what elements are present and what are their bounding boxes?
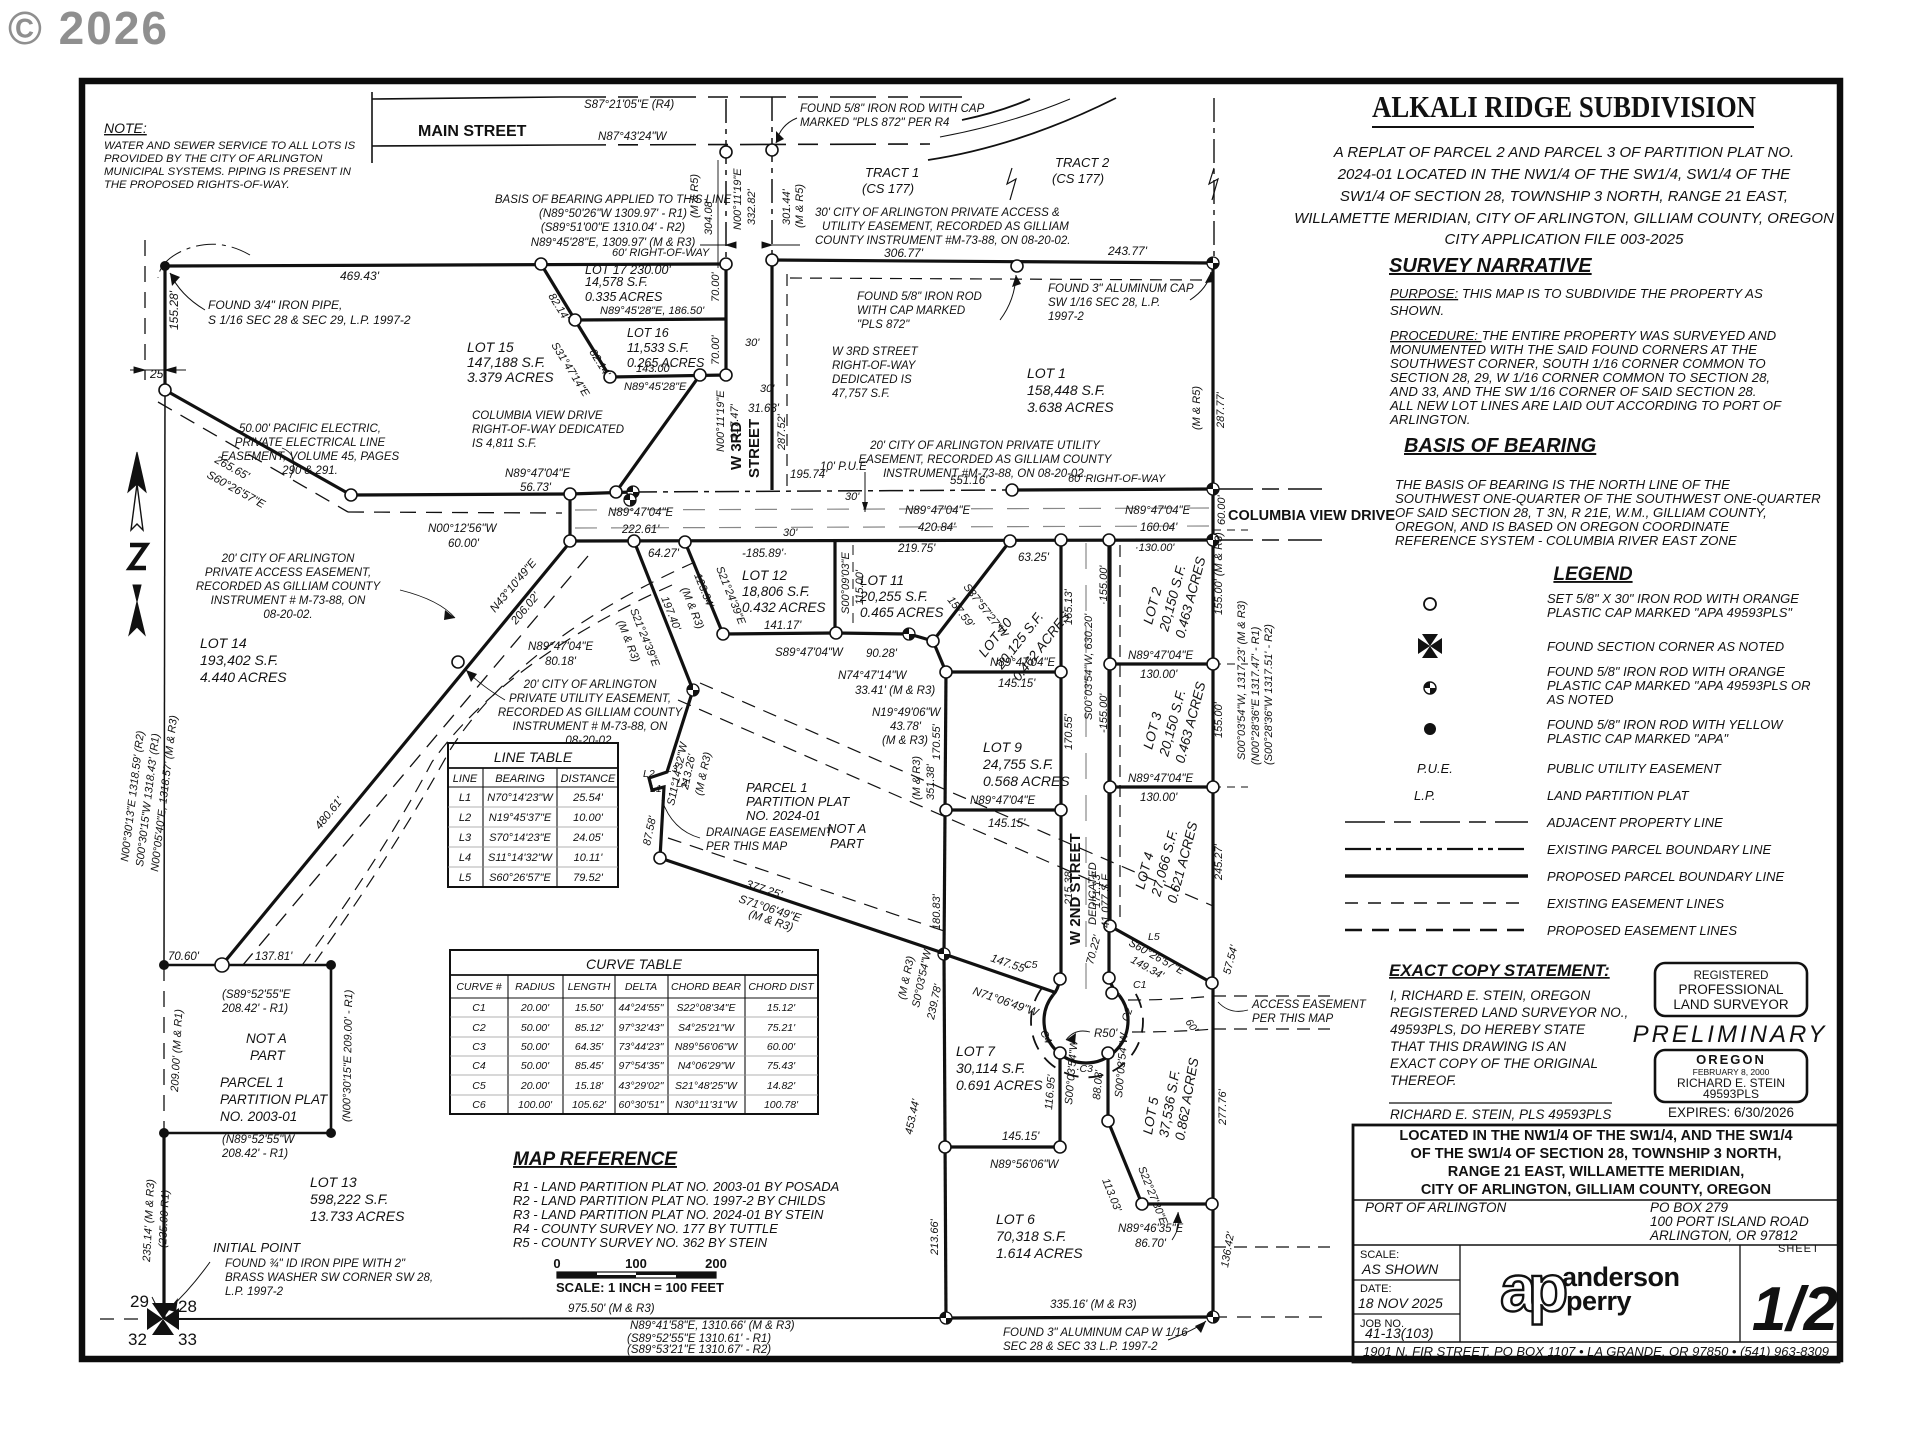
svg-text:13.733 ACRES: 13.733 ACRES xyxy=(310,1208,405,1224)
svg-text:56.73': 56.73' xyxy=(520,482,552,494)
svg-text:277.76': 277.76' xyxy=(1217,1088,1229,1126)
svg-text:290 & 291.: 290 & 291. xyxy=(281,465,338,477)
svg-text:49593PLS: 49593PLS xyxy=(1703,1087,1759,1101)
svg-text:S21°48'25"W: S21°48'25"W xyxy=(675,1080,738,1092)
svg-text:INSTRUMENT # M-73-88, ON: INSTRUMENT # M-73-88, ON xyxy=(513,721,668,733)
svg-text:DRAINAGE EASEMENT: DRAINAGE EASEMENT xyxy=(706,827,833,839)
svg-text:N89°47'04"E: N89°47'04"E xyxy=(990,657,1056,669)
svg-text:BEARING: BEARING xyxy=(495,773,545,785)
svg-text:50.00' PACIFIC ELECTRIC,: 50.00' PACIFIC ELECTRIC, xyxy=(239,423,381,435)
svg-text:70.00': 70.00' xyxy=(710,271,722,302)
svg-text:R1 - LAND PARTITION PLAT NO. 2: R1 - LAND PARTITION PLAT NO. 2003-01 BY … xyxy=(513,1179,839,1194)
svg-text:PROPOSED EASEMENT LINES: PROPOSED EASEMENT LINES xyxy=(1547,923,1737,938)
svg-text:MAP REFERENCE: MAP REFERENCE xyxy=(513,1149,678,1170)
svg-text:S11°14'32"W: S11°14'32"W xyxy=(488,852,554,864)
svg-text:DELTA: DELTA xyxy=(625,981,657,993)
svg-text:I, RICHARD E. STEIN, OREGON: I, RICHARD E. STEIN, OREGON xyxy=(1390,988,1591,1003)
svg-text:DISTANCE: DISTANCE xyxy=(561,773,616,785)
svg-text:RECORDED AS GILLIAM COUNTY: RECORDED AS GILLIAM COUNTY xyxy=(498,707,684,719)
svg-text:LOCATED IN THE NW1/4 OF THE SW: LOCATED IN THE NW1/4 OF THE SW1/4, AND T… xyxy=(1399,1128,1792,1144)
svg-text:LOT 1: LOT 1 xyxy=(1027,365,1066,381)
svg-text:0.691 ACRES: 0.691 ACRES xyxy=(956,1077,1043,1093)
svg-text:155.00': 155.00' xyxy=(1213,701,1225,738)
svg-text:S22°08'34"E: S22°08'34"E xyxy=(677,1002,737,1014)
svg-text:DATE:: DATE: xyxy=(1360,1283,1392,1295)
svg-text:THE BASIS OF BEARING IS THE NO: THE BASIS OF BEARING IS THE NORTH LINE O… xyxy=(1395,477,1730,492)
svg-text:FOUND 5/8" IRON ROD WITH YELLO: FOUND 5/8" IRON ROD WITH YELLOW xyxy=(1547,717,1784,732)
svg-text:332.82': 332.82' xyxy=(746,188,758,225)
svg-text:INSTRUMENT # M-73-88, ON: INSTRUMENT # M-73-88, ON xyxy=(211,595,366,607)
svg-text:WATER AND SEWER SERVICE TO ALL: WATER AND SEWER SERVICE TO ALL LOTS IS xyxy=(104,140,356,152)
svg-text:469.43': 469.43' xyxy=(340,269,380,283)
svg-text:WITH CAP MARKED: WITH CAP MARKED xyxy=(857,305,965,317)
svg-text:N89°47'04"E: N89°47'04"E xyxy=(1125,505,1191,517)
svg-text:MONUMENTED WITH THE SAID FOUND: MONUMENTED WITH THE SAID FOUND CORNERS A… xyxy=(1390,342,1757,357)
svg-text:100.00': 100.00' xyxy=(518,1099,553,1111)
svg-text:10.00': 10.00' xyxy=(573,812,604,824)
svg-text:ALKALI RIDGE SUBDIVISION: ALKALI RIDGE SUBDIVISION xyxy=(1372,89,1756,124)
svg-text:N87°43'24"W: N87°43'24"W xyxy=(598,131,668,143)
svg-text:C3: C3 xyxy=(472,1041,486,1053)
svg-text:20,255 S.F.: 20,255 S.F. xyxy=(859,589,928,604)
svg-text:15.50': 15.50' xyxy=(575,1002,604,1014)
svg-text:25.54': 25.54' xyxy=(572,792,604,804)
svg-text:N89°56'06"W: N89°56'06"W xyxy=(675,1041,739,1053)
svg-text:THAT THIS DRAWING IS AN: THAT THIS DRAWING IS AN xyxy=(1390,1039,1566,1054)
svg-text:L5: L5 xyxy=(459,872,472,884)
svg-text:N89°45'28"E, 186.50': N89°45'28"E, 186.50' xyxy=(600,305,705,317)
svg-text:SURVEY NARRATIVE: SURVEY NARRATIVE xyxy=(1389,255,1592,277)
svg-text:(S89°52'55"E: (S89°52'55"E xyxy=(222,989,291,1001)
svg-text:70.00': 70.00' xyxy=(710,334,722,365)
svg-text:N89°47'04"E: N89°47'04"E xyxy=(1128,773,1194,785)
svg-text:"PLS 872": "PLS 872" xyxy=(857,319,910,331)
svg-text:287.77': 287.77' xyxy=(1215,391,1227,429)
svg-text:CITY APPLICATION FILE 003-2025: CITY APPLICATION FILE 003-2025 xyxy=(1445,231,1685,248)
svg-text:20' CITY OF ARLINGTON PRIVATE: 20' CITY OF ARLINGTON PRIVATE UTILITY xyxy=(869,440,1101,452)
svg-text:90.28': 90.28' xyxy=(866,648,898,660)
svg-text:50.00': 50.00' xyxy=(521,1041,550,1053)
svg-text:RECORDED AS GILLIAM COUNTY: RECORDED AS GILLIAM COUNTY xyxy=(196,581,382,593)
svg-text:ADJACENT PROPERTY LINE: ADJACENT PROPERTY LINE xyxy=(1546,815,1723,830)
svg-text:NOTE:: NOTE: xyxy=(104,120,147,136)
svg-text:0: 0 xyxy=(553,1256,560,1271)
svg-text:PARCEL 1: PARCEL 1 xyxy=(220,1075,284,1090)
svg-text:0.465 ACRES: 0.465 ACRES xyxy=(860,605,944,620)
svg-text:222.61': 222.61' xyxy=(621,524,660,536)
svg-text:PURPOSE: THIS MAP IS TO SUBDIV: PURPOSE: THIS MAP IS TO SUBDIVIDE THE PR… xyxy=(1390,286,1763,301)
svg-text:20.00': 20.00' xyxy=(520,1002,550,1014)
svg-text:PLASTIC CAP MARKED "APA": PLASTIC CAP MARKED "APA" xyxy=(1547,731,1730,746)
svg-text:COUNTY INSTRUMENT #M-73-88, ON: COUNTY INSTRUMENT #M-73-88, ON 08-20-02. xyxy=(815,235,1070,247)
svg-text:LOT 6: LOT 6 xyxy=(996,1211,1035,1227)
svg-text:CITY OF ARLINGTON, GILLIAM COU: CITY OF ARLINGTON, GILLIAM COUNTY, OREGO… xyxy=(1421,1182,1771,1198)
svg-text:243.77': 243.77' xyxy=(1107,244,1148,258)
svg-text:20' CITY OF ARLINGTON: 20' CITY OF ARLINGTON xyxy=(221,553,355,565)
svg-text:LOT 15: LOT 15 xyxy=(467,339,514,355)
svg-text:S 1/16 SEC 28 & SEC 29, L.P. 1: S 1/16 SEC 28 & SEC 29, L.P. 1997-2 xyxy=(208,313,411,327)
svg-text:N89°47'04"E: N89°47'04"E xyxy=(905,505,971,517)
svg-text:33: 33 xyxy=(178,1330,197,1349)
svg-text:FOUND 3" ALUMINUM CAP: FOUND 3" ALUMINUM CAP xyxy=(1048,283,1194,295)
svg-text:PROPOSED PARCEL BOUNDARY LINE: PROPOSED PARCEL BOUNDARY LINE xyxy=(1547,869,1785,884)
svg-text:20' CITY OF ARLINGTON: 20' CITY OF ARLINGTON xyxy=(523,679,657,691)
svg-text:50.00': 50.00' xyxy=(521,1060,550,1072)
svg-text:130.00': 130.00' xyxy=(1140,792,1178,804)
svg-text:A REPLAT OF PARCEL 2 AND PARCE: A REPLAT OF PARCEL 2 AND PARCEL 3 OF PAR… xyxy=(1333,144,1794,161)
svg-text:MUNICIPAL SYSTEMS. PIPING IS: MUNICIPAL SYSTEMS. PIPING IS PRESENT IN xyxy=(104,166,352,178)
svg-text:FOUND 5/8" IRON ROD WITH ORANG: FOUND 5/8" IRON ROD WITH ORANGE xyxy=(1547,664,1785,679)
svg-text:14.82': 14.82' xyxy=(767,1080,796,1092)
svg-text:28: 28 xyxy=(178,1297,197,1316)
svg-text:AS NOTED: AS NOTED xyxy=(1546,692,1613,707)
svg-text:49593PLS, DO HEREBY STATE: 49593PLS, DO HEREBY STATE xyxy=(1390,1022,1586,1037)
svg-text:130.00': 130.00' xyxy=(1140,669,1178,681)
svg-text:170.55': 170.55' xyxy=(1063,713,1075,750)
svg-text:80.18': 80.18' xyxy=(545,656,577,668)
svg-text:R3 - LAND PARTITION PLAT NO. 2: R3 - LAND PARTITION PLAT NO. 2024-01 BY … xyxy=(513,1207,824,1222)
svg-text:P.U.E.: P.U.E. xyxy=(1417,761,1453,776)
svg-text:EASEMENT, VOLUME 45, PAGES: EASEMENT, VOLUME 45, PAGES xyxy=(221,451,400,463)
svg-text:975.50' (M & R3): 975.50' (M & R3) xyxy=(568,1303,655,1315)
svg-text:(M & R5): (M & R5) xyxy=(689,174,701,218)
svg-text:PO BOX 279: PO BOX 279 xyxy=(1650,1200,1729,1215)
svg-text:N89°47'04"E: N89°47'04"E xyxy=(608,507,674,519)
svg-text:158,448 S.F.: 158,448 S.F. xyxy=(1027,382,1105,398)
svg-text:N74°47'14"W: N74°47'14"W xyxy=(838,670,908,682)
svg-text:·130.00': ·130.00' xyxy=(1135,542,1175,554)
svg-text:306.77': 306.77' xyxy=(884,246,924,260)
svg-text:ARLINGTON, OR 97812: ARLINGTON, OR 97812 xyxy=(1649,1228,1798,1243)
svg-text:1/2: 1/2 xyxy=(1752,1275,1838,1344)
svg-text:SHOWN.: SHOWN. xyxy=(1390,303,1444,318)
svg-text:08-20-02.: 08-20-02. xyxy=(263,609,312,621)
svg-text:R5 - COUNTY SURVEY NO. 362 BY: R5 - COUNTY SURVEY NO. 362 BY STEIN xyxy=(513,1235,768,1250)
svg-text:N89°56'06"W: N89°56'06"W xyxy=(990,1159,1060,1171)
svg-text:R4 - COUNTY SURVEY NO. 177 BY: R4 - COUNTY SURVEY NO. 177 BY TUTTLE xyxy=(513,1221,778,1236)
svg-text:4.440 ACRES: 4.440 ACRES xyxy=(200,669,287,685)
svg-text:(S89°53'21"E 1310.67' - R2): (S89°53'21"E 1310.67' - R2) xyxy=(627,1344,771,1356)
svg-text:EXPIRES: 6/30/2026: EXPIRES: 6/30/2026 xyxy=(1668,1105,1794,1120)
svg-text:WILLAMETTE MERIDIAN, CITY OF A: WILLAMETTE MERIDIAN, CITY OF ARLINGTON, … xyxy=(1294,210,1834,227)
svg-text:31.63': 31.63' xyxy=(748,403,780,415)
svg-text:TRACT 2: TRACT 2 xyxy=(1055,155,1110,170)
svg-text:60' RIGHT-OF-WAY: 60' RIGHT-OF-WAY xyxy=(1068,473,1166,485)
svg-text:213.66': 213.66' xyxy=(929,1218,941,1256)
svg-text:50.00': 50.00' xyxy=(521,1022,550,1034)
svg-text:NO. 2024-01: NO. 2024-01 xyxy=(746,808,820,823)
svg-text:N89°47'04"E: N89°47'04"E xyxy=(505,468,571,480)
svg-text:LENGTH: LENGTH xyxy=(568,981,611,993)
svg-text:N00°11'19"E: N00°11'19"E xyxy=(715,390,727,452)
svg-text:THE PROPOSED RIGHTS-OF-WAY.: THE PROPOSED RIGHTS-OF-WAY. xyxy=(104,179,290,191)
svg-text:208.42' - R1): 208.42' - R1) xyxy=(221,1148,288,1160)
svg-text:14,578 S.F.: 14,578 S.F. xyxy=(585,275,648,289)
svg-text:ARLINGTON.: ARLINGTON. xyxy=(1389,412,1470,427)
svg-text:SOUTHWEST ONE-QUARTER OF THE S: SOUTHWEST ONE-QUARTER OF THE SOUTHWEST O… xyxy=(1395,491,1821,506)
svg-text:(N00°28'36"E 1317.47' - R1): (N00°28'36"E 1317.47' - R1) xyxy=(1250,626,1262,765)
svg-text:SOUTHWEST CORNER, SOUTH 1/16 C: SOUTHWEST CORNER, SOUTH 1/16 CORNER COMM… xyxy=(1390,356,1766,371)
svg-text:L1: L1 xyxy=(650,783,662,795)
svg-text:171.13': 171.13' xyxy=(1091,871,1103,908)
svg-text:N89°47'04"E: N89°47'04"E xyxy=(1128,650,1194,662)
svg-text:43.78': 43.78' xyxy=(890,721,922,733)
svg-text:(S89°51'00"E 1310.04' - R2): (S89°51'00"E 1310.04' - R2) xyxy=(541,222,685,234)
svg-text:RIGHT-OF-WAY: RIGHT-OF-WAY xyxy=(832,360,917,372)
svg-text:160.04': 160.04' xyxy=(1140,522,1178,534)
svg-text:-185.89'·: -185.89'· xyxy=(742,548,787,560)
svg-text:·C3: ·C3 xyxy=(1076,1063,1093,1075)
svg-text:PARTITION PLAT: PARTITION PLAT xyxy=(746,794,850,809)
svg-text:287.52': 287.52' xyxy=(776,413,788,451)
svg-text:RICHARD E. STEIN, PLS 49593PLS: RICHARD E. STEIN, PLS 49593PLS xyxy=(1390,1107,1611,1122)
svg-text:(S00°28'36"W 1317.51' - R2): (S00°28'36"W 1317.51' - R2) xyxy=(1263,624,1275,765)
svg-text:W 3RD STREET: W 3RD STREET xyxy=(832,346,919,358)
svg-text:R50': R50' xyxy=(1094,1028,1118,1040)
svg-text:AND 33, AND THE SW 1/16 CORNER: AND 33, AND THE SW 1/16 CORNER OF SAID S… xyxy=(1389,384,1756,399)
svg-text:FOUND ¾" ID IRON PIPE WITH 2": FOUND ¾" ID IRON PIPE WITH 2" xyxy=(225,1258,406,1270)
svg-text:PARTITION PLAT: PARTITION PLAT xyxy=(220,1092,329,1107)
svg-text:304.08': 304.08' xyxy=(703,198,715,235)
svg-text:-155.00': -155.00' xyxy=(1098,693,1110,733)
svg-text:30': 30' xyxy=(760,383,775,395)
svg-text:75.21': 75.21' xyxy=(767,1022,796,1034)
svg-text:L.P.: L.P. xyxy=(1414,788,1435,803)
svg-text:N4°06'29"W: N4°06'29"W xyxy=(678,1060,736,1072)
svg-text:L2: L2 xyxy=(643,768,655,780)
svg-text:MAIN STREET: MAIN STREET xyxy=(418,123,527,140)
svg-text:420.84': 420.84' xyxy=(918,522,956,534)
svg-text:S00°03'54"W, 630.20': S00°03'54"W, 630.20' xyxy=(1083,613,1095,720)
svg-text:SHEET: SHEET xyxy=(1778,1243,1820,1255)
svg-text:1901 N. FIR STREET, PO BOX 110: 1901 N. FIR STREET, PO BOX 1107 • LA GRA… xyxy=(1363,1344,1829,1359)
svg-text:LOT 13: LOT 13 xyxy=(310,1174,357,1190)
svg-text:105.62': 105.62' xyxy=(572,1099,607,1111)
svg-text:N70°14'23"W: N70°14'23"W xyxy=(487,792,554,804)
svg-text:60.00': 60.00' xyxy=(1216,494,1228,525)
svg-text:64.27': 64.27' xyxy=(648,548,680,560)
svg-text:LOT 9: LOT 9 xyxy=(983,739,1022,755)
svg-text:C1: C1 xyxy=(1133,979,1146,991)
svg-text:SW1/4 OF SECTION 28, TOWNSHIP: SW1/4 OF SECTION 28, TOWNSHIP 3 NORTH, R… xyxy=(1340,188,1788,205)
svg-text:PRIVATE UTILITY EASEMENT,: PRIVATE UTILITY EASEMENT, xyxy=(509,693,671,705)
svg-text:N89°47'04"E: N89°47'04"E xyxy=(528,641,594,653)
svg-text:(CS 177): (CS 177) xyxy=(862,181,914,196)
svg-text:S4°25'21"W: S4°25'21"W xyxy=(678,1022,735,1034)
svg-text:N89°46'35"E: N89°46'35"E xyxy=(1118,1223,1184,1235)
svg-text:FOUND 3/4" IRON PIPE,: FOUND 3/4" IRON PIPE, xyxy=(208,298,342,312)
svg-text:86.70': 86.70' xyxy=(1135,1238,1167,1250)
svg-text:LOT 12: LOT 12 xyxy=(742,568,788,583)
svg-text:47,757 S.F.: 47,757 S.F. xyxy=(832,388,890,400)
svg-text:·155.00': ·155.00' xyxy=(1098,565,1110,605)
svg-text:29: 29 xyxy=(130,1292,149,1311)
svg-text:PART: PART xyxy=(250,1048,287,1063)
svg-text:1.614 ACRES: 1.614 ACRES xyxy=(996,1245,1083,1261)
svg-text:L1: L1 xyxy=(459,792,471,804)
svg-text:0.432 ACRES: 0.432 ACRES xyxy=(742,600,826,615)
svg-text:AS SHOWN: AS SHOWN xyxy=(1361,1261,1439,1277)
svg-text:OF SAID SECTION 28, T 3N, R 21: OF SAID SECTION 28, T 3N, R 21E, W.M., G… xyxy=(1395,505,1767,520)
svg-text:PRIVATE ACCESS EASEMENT,: PRIVATE ACCESS EASEMENT, xyxy=(205,567,371,579)
svg-text:N89°47'04"E: N89°47'04"E xyxy=(970,795,1036,807)
svg-text:LOT 11: LOT 11 xyxy=(860,573,904,588)
svg-text:LAND PARTITION PLAT: LAND PARTITION PLAT xyxy=(1547,788,1690,803)
svg-text:EXACT COPY STATEMENT:: EXACT COPY STATEMENT: xyxy=(1389,961,1610,980)
svg-text:UTILITY EASEMENT, RECORDED AS: UTILITY EASEMENT, RECORDED AS GILLIAM xyxy=(822,221,1069,233)
svg-text:79.52': 79.52' xyxy=(573,872,604,884)
svg-text:15.18': 15.18' xyxy=(575,1080,604,1092)
svg-text:perry: perry xyxy=(1566,1286,1632,1316)
svg-text:COLUMBIA VIEW DRIVE: COLUMBIA VIEW DRIVE xyxy=(1228,508,1395,524)
svg-text:598,222 S.F.: 598,222 S.F. xyxy=(310,1191,388,1207)
svg-text:PRIVATE ELECTRICAL LINE: PRIVATE ELECTRICAL LINE xyxy=(235,437,386,449)
svg-text:PART: PART xyxy=(830,836,865,851)
svg-text:REGISTERED LAND SURVEYOR NO.,: REGISTERED LAND SURVEYOR NO., xyxy=(1390,1005,1628,1020)
svg-text:BASIS OF BEARING: BASIS OF BEARING xyxy=(1404,435,1596,457)
svg-text:33.41' (M & R3): 33.41' (M & R3) xyxy=(855,685,935,697)
svg-text:3.638 ACRES: 3.638 ACRES xyxy=(1027,399,1114,415)
svg-text:(M & R5): (M & R5) xyxy=(794,184,806,228)
svg-text:08-20-02.: 08-20-02. xyxy=(565,735,614,747)
svg-text:25': 25' xyxy=(149,367,166,381)
svg-text:CHORD DIST: CHORD DIST xyxy=(748,981,815,993)
svg-text:PORT OF ARLINGTON: PORT OF ARLINGTON xyxy=(1365,1200,1507,1215)
svg-text:OREGON, AND IS BASED ON OREGON: OREGON, AND IS BASED ON OREGON COORDINAT… xyxy=(1395,519,1729,534)
svg-text:44°24'55": 44°24'55" xyxy=(619,1002,665,1014)
svg-text:2024-01 LOCATED IN THE NW1/4 O: 2024-01 LOCATED IN THE NW1/4 OF THE SW1/… xyxy=(1337,166,1792,183)
svg-text:S89°47'04"W: S89°47'04"W xyxy=(775,647,844,659)
svg-text:N30°11'31"W: N30°11'31"W xyxy=(675,1099,738,1111)
svg-text:LINE TABLE: LINE TABLE xyxy=(494,749,573,765)
svg-text:FOUND 5/8" IRON ROD: FOUND 5/8" IRON ROD xyxy=(857,291,982,303)
svg-text:60.00': 60.00' xyxy=(448,538,480,550)
svg-text:(M & R3): (M & R3) xyxy=(911,756,923,800)
svg-text:N00°12'56"W: N00°12'56"W xyxy=(428,523,498,535)
svg-text:551.16': 551.16' xyxy=(950,475,988,487)
svg-text:PARCEL 1: PARCEL 1 xyxy=(746,780,808,795)
svg-text:C6: C6 xyxy=(472,1099,486,1111)
svg-text:SCALE: 1 INCH = 100 FEET: SCALE: 1 INCH = 100 FEET xyxy=(556,1280,724,1295)
svg-text:FOUND 3" ALUMINUM CAP W 1/16: FOUND 3" ALUMINUM CAP W 1/16 xyxy=(1003,1327,1188,1339)
svg-text:S60°26'57"E: S60°26'57"E xyxy=(489,872,551,884)
svg-text:ALL NEW LOT LINES ARE LAID OUT: ALL NEW LOT LINES ARE LAID OUT ACCORDING… xyxy=(1389,398,1782,413)
svg-text:N89°45'28"E: N89°45'28"E xyxy=(624,381,687,393)
svg-text:CURVE #: CURVE # xyxy=(456,981,501,993)
svg-text:R2 - LAND PARTITION PLAT NO. 1: R2 - LAND PARTITION PLAT NO. 1997-2 BY C… xyxy=(513,1193,826,1208)
svg-text:L5: L5 xyxy=(1148,931,1160,943)
svg-text:NOT A: NOT A xyxy=(827,821,866,836)
svg-text:W 2ND STREET: W 2ND STREET xyxy=(1067,833,1084,945)
svg-text:351.38': 351.38' xyxy=(925,763,937,800)
svg-text:0.568 ACRES: 0.568 ACRES xyxy=(983,773,1070,789)
svg-text:(M & R3): (M & R3) xyxy=(882,735,928,747)
svg-text:N89°41'58"E, 1310.66' (M & R: N89°41'58"E, 1310.66' (M & R3) xyxy=(630,1320,795,1332)
svg-text:EXISTING PARCEL BOUNDARY LINE: EXISTING PARCEL BOUNDARY LINE xyxy=(1547,842,1772,857)
svg-text:CURVE TABLE: CURVE TABLE xyxy=(586,956,683,972)
svg-text:147,188 S.F.: 147,188 S.F. xyxy=(467,354,545,370)
svg-text:145.15': 145.15' xyxy=(998,678,1036,690)
svg-text:63.25': 63.25' xyxy=(1018,552,1050,564)
svg-text:PROFESSIONAL: PROFESSIONAL xyxy=(1678,982,1784,997)
svg-text:N19°49'06"W: N19°49'06"W xyxy=(872,707,942,719)
svg-text:C4: C4 xyxy=(472,1060,486,1072)
svg-text:208.42' - R1): 208.42' - R1) xyxy=(221,1003,288,1015)
svg-text:301.44': 301.44' xyxy=(781,188,793,225)
svg-text:155.28': 155.28' xyxy=(167,290,181,330)
svg-text:1997-2: 1997-2 xyxy=(1048,311,1084,323)
svg-text:70,318 S.F.: 70,318 S.F. xyxy=(996,1228,1067,1244)
svg-text:SECTION 28, 29, W 1/16 CORNER: SECTION 28, 29, W 1/16 CORNER COMMON TO … xyxy=(1390,370,1770,385)
svg-text:85.12': 85.12' xyxy=(575,1022,604,1034)
svg-text:143.00': 143.00' xyxy=(636,363,673,375)
svg-text:FOUND SECTION CORNER AS NOTED: FOUND SECTION CORNER AS NOTED xyxy=(1547,639,1784,654)
svg-text:L2: L2 xyxy=(459,812,471,824)
svg-text:PER THIS MAP: PER THIS MAP xyxy=(706,841,787,853)
svg-text:LAND SURVEYOR: LAND SURVEYOR xyxy=(1673,997,1789,1012)
svg-text:EXISTING EASEMENT LINES: EXISTING EASEMENT LINES xyxy=(1547,896,1724,911)
svg-text:THEREOF.: THEREOF. xyxy=(1390,1073,1457,1088)
svg-text:70.60': 70.60' xyxy=(168,951,200,963)
svg-text:LOT 16: LOT 16 xyxy=(627,326,669,340)
svg-text:OF THE SW1/4 OF SECTION 28, TO: OF THE SW1/4 OF SECTION 28, TOWNSHIP 3 N… xyxy=(1411,1146,1782,1162)
svg-text:(N89°52'55"W: (N89°52'55"W xyxy=(222,1134,295,1146)
svg-text:MARKED "PLS 872" PER R4: MARKED "PLS 872" PER R4 xyxy=(800,117,949,129)
svg-text:LEGEND: LEGEND xyxy=(1553,564,1632,585)
svg-text:N19°45'37"E: N19°45'37"E xyxy=(489,812,552,824)
svg-text:41-13(103): 41-13(103) xyxy=(1365,1325,1434,1341)
svg-text:PROVIDED BY THE CITY OF ARLING: PROVIDED BY THE CITY OF ARLINGTON xyxy=(104,153,323,165)
svg-text:145.15': 145.15' xyxy=(1002,1131,1040,1143)
svg-text:73°44'23": 73°44'23" xyxy=(619,1041,665,1053)
svg-text:LOT 14: LOT 14 xyxy=(200,635,247,651)
svg-text:100: 100 xyxy=(625,1256,647,1271)
svg-text:193,402 S.F.: 193,402 S.F. xyxy=(200,652,278,668)
svg-text:PUBLIC UTILITY EASEMENT: PUBLIC UTILITY EASEMENT xyxy=(1547,761,1722,776)
svg-text:PER THIS MAP: PER THIS MAP xyxy=(1252,1013,1333,1025)
svg-text:100.78': 100.78' xyxy=(764,1099,799,1111)
svg-text:S00°03'54"W, 1317.23' (M & R3: S00°03'54"W, 1317.23' (M & R3) xyxy=(1236,600,1248,760)
svg-text:SCALE:: SCALE: xyxy=(1360,1249,1399,1261)
svg-text:L.P. 1997-2: L.P. 1997-2 xyxy=(225,1286,284,1298)
svg-text:SEC 28 & SEC 33 L.P. 1997-2: SEC 28 & SEC 33 L.P. 1997-2 xyxy=(1003,1341,1158,1353)
svg-text:85.45': 85.45' xyxy=(575,1060,604,1072)
svg-text:DEDICATED IS: DEDICATED IS xyxy=(832,374,912,386)
svg-text:EASEMENT, RECORDED AS GILLIAM: EASEMENT, RECORDED AS GILLIAM COUNTY xyxy=(859,454,1113,466)
svg-text:43°29'02": 43°29'02" xyxy=(619,1080,665,1092)
svg-text:L4: L4 xyxy=(459,852,471,864)
svg-text:PLASTIC CAP MARKED "APA 49593P: PLASTIC CAP MARKED "APA 49593PLS" xyxy=(1547,605,1793,620)
svg-text:145.15': 145.15' xyxy=(988,818,1026,830)
svg-text:NO. 2003-01: NO. 2003-01 xyxy=(220,1109,297,1124)
svg-text:REGISTERED: REGISTERED xyxy=(1694,970,1769,982)
svg-text:N00°11'19"E: N00°11'19"E xyxy=(732,168,744,230)
svg-text:(N00°30'15"E 209.00' - R1): (N00°30'15"E 209.00' - R1) xyxy=(341,989,355,1122)
svg-text:BRASS WASHER SW CORNER SW 28,: BRASS WASHER SW CORNER SW 28, xyxy=(225,1272,433,1284)
svg-text:FOUND 5/8" IRON ROD WITH CAP: FOUND 5/8" IRON ROD WITH CAP xyxy=(800,103,985,115)
svg-text:317.47': 317.47' xyxy=(729,403,741,440)
svg-text:S00°09'03"E: S00°09'03"E xyxy=(840,552,852,614)
svg-text:100 PORT ISLAND ROAD: 100 PORT ISLAND ROAD xyxy=(1650,1214,1809,1229)
svg-text:245.27': 245.27' xyxy=(1213,843,1225,881)
svg-text:60' RIGHT-OF-WAY: 60' RIGHT-OF-WAY xyxy=(612,247,710,259)
svg-text:ACCESS EASEMENT: ACCESS EASEMENT xyxy=(1251,999,1367,1011)
svg-text:OREGON: OREGON xyxy=(1696,1052,1766,1067)
svg-text:64.35': 64.35' xyxy=(575,1041,604,1053)
svg-text:60°30'51": 60°30'51" xyxy=(619,1099,665,1111)
svg-text:10.11': 10.11' xyxy=(574,852,604,864)
svg-text:C1: C1 xyxy=(472,1002,485,1014)
